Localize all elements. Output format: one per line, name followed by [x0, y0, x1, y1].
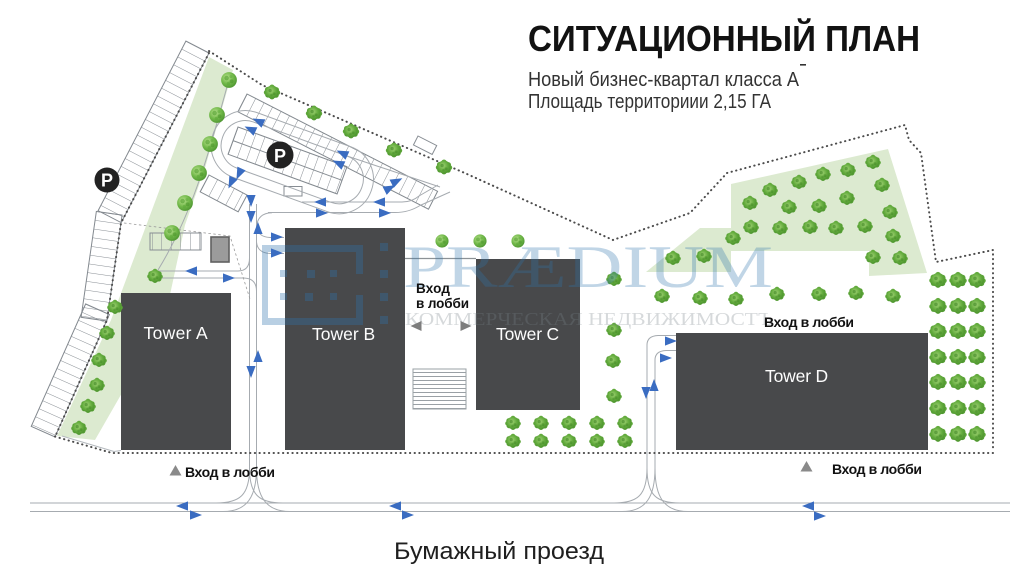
svg-text:Вход в лобби: Вход в лобби [764, 314, 854, 330]
svg-text:Вход в лобби: Вход в лобби [185, 464, 275, 480]
svg-text:Tower D: Tower D [765, 366, 829, 386]
svg-text:Tower B: Tower B [312, 324, 376, 344]
svg-text:Вход в лобби: Вход в лобби [832, 461, 922, 477]
svg-text:Tower A: Tower A [144, 323, 209, 343]
svg-text:в лобби: в лобби [416, 296, 469, 311]
svg-text:КОММЕРЧЕСКАЯ НЕДВИЖИМОСТЪ: КОММЕРЧЕСКАЯ НЕДВИЖИМОСТЪ [405, 309, 773, 329]
svg-text:Новый бизнес-квартал класса А: Новый бизнес-квартал класса А [528, 69, 800, 91]
svg-text:Бумажный проезд: Бумажный проезд [394, 538, 604, 565]
svg-text:P: P [274, 146, 286, 166]
svg-text:P: P [101, 171, 113, 191]
svg-text:PRÆDIUM: PRÆDIUM [403, 234, 773, 300]
svg-text:СИТУАЦИОННЫЙ ПЛАН: СИТУАЦИОННЫЙ ПЛАН [528, 17, 920, 59]
svg-text:Вход: Вход [416, 281, 450, 296]
svg-text:Площадь территориии 2,15 ГА: Площадь территориии 2,15 ГА [528, 91, 772, 113]
